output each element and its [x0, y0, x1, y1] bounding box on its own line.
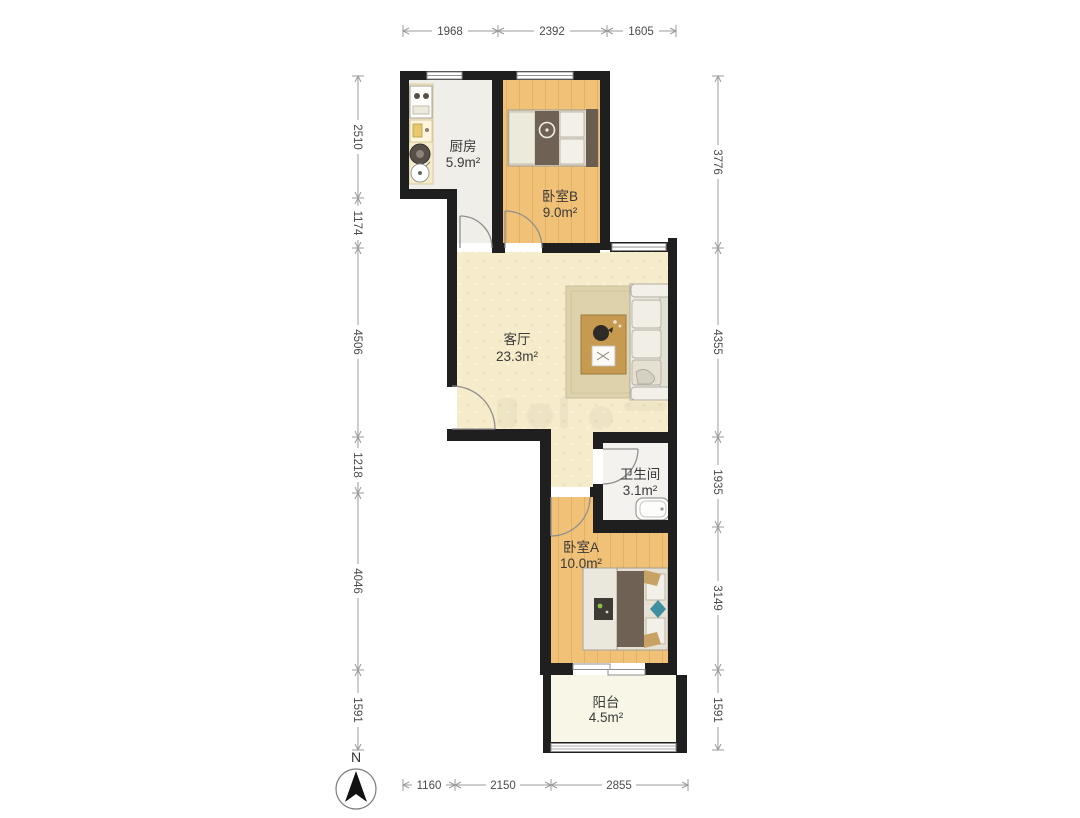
floorplan-canvas: 厨房 5.9m² 卧室B 9.0m² 客厅 23.3m² 卫生间 3.1m² 卧…	[0, 0, 1080, 818]
dimension-label: 1968	[437, 26, 463, 38]
wardrobe-icon	[583, 568, 617, 650]
dimension-label: 4046	[351, 568, 363, 594]
dimension-label: 1935	[711, 469, 723, 495]
dimension-label: 1218	[351, 452, 363, 478]
dimension-label: 1591	[351, 697, 363, 723]
dimension-label: 1174	[351, 211, 363, 236]
dimensions-top: 1968 2392 1605	[403, 25, 676, 38]
coffee-table-icon	[581, 315, 626, 374]
floorplan-svg: 厨房 5.9m² 卧室B 9.0m² 客厅 23.3m² 卫生间 3.1m² 卧…	[0, 0, 1080, 818]
living-room-area: 23.3m²	[496, 349, 539, 364]
dimension-label: 1591	[711, 697, 723, 723]
dimension-label: 1160	[417, 780, 442, 792]
balcony-sliding-door	[573, 664, 645, 675]
bed-icon-bedroom-a	[617, 568, 668, 650]
dimensions-bottom: 1160 2150 2855	[403, 779, 688, 792]
counter-item-icon	[410, 120, 432, 142]
sofa-icon	[630, 284, 672, 400]
dimensions-right: 3776 4355 1935 3149 1591	[711, 76, 724, 750]
dimensions-left: 2510 1174 4506 1218 4046 1591	[351, 76, 364, 750]
dimension-label: 3776	[711, 149, 723, 175]
compass: N	[336, 749, 376, 809]
dimension-label: 1605	[628, 26, 654, 38]
north-label: N	[351, 749, 361, 765]
bathroom-area: 3.1m²	[623, 483, 658, 498]
balcony-label: 阳台	[593, 695, 620, 710]
bedroom-a-label: 卧室A	[563, 539, 599, 555]
bathtub-icon	[636, 498, 669, 520]
bathroom-label: 卫生间	[620, 467, 661, 482]
dimension-label: 4355	[711, 329, 723, 355]
north-arrow-icon	[345, 771, 367, 802]
dimension-label: 2150	[490, 780, 516, 792]
bed-icon-bedroom-b	[508, 109, 598, 167]
washing-machine-icon	[410, 144, 430, 164]
kitchen-window	[427, 72, 462, 79]
bedroom-b-area: 9.0m²	[543, 205, 578, 220]
balcony-window	[551, 744, 676, 752]
balcony-area: 4.5m²	[589, 710, 624, 725]
kitchen-counter	[409, 84, 433, 184]
bedroom-b-window	[517, 72, 573, 79]
kitchen-label: 厨房	[450, 139, 477, 154]
bedroom-b-label: 卧室B	[542, 188, 578, 204]
kitchen-area: 5.9m²	[446, 155, 481, 170]
dimension-label: 4506	[351, 329, 363, 355]
dimension-label: 3149	[711, 585, 723, 611]
dimension-label: 2392	[539, 26, 565, 38]
dimension-label: 2855	[606, 780, 632, 792]
living-room-label: 客厅	[504, 331, 531, 347]
bedroom-a-area: 10.0m²	[560, 556, 603, 571]
dimension-label: 2510	[351, 124, 363, 150]
living-room-window	[612, 244, 666, 251]
stove-icon	[410, 86, 432, 118]
